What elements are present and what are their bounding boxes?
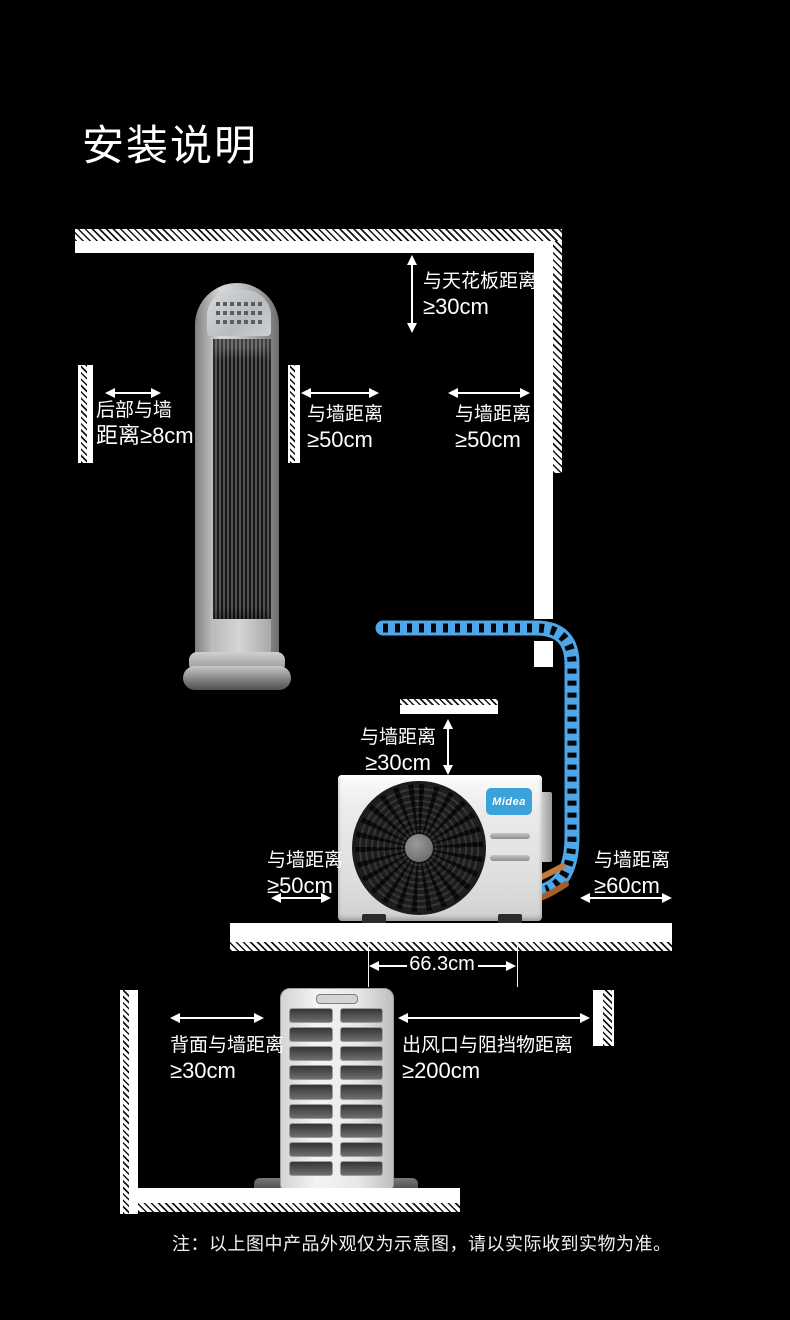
grille-slot <box>289 1065 333 1080</box>
outdoor-unit: Midea <box>338 775 542 921</box>
outdoor-left-clearance-arrow <box>273 897 329 899</box>
grille-slot <box>340 1008 384 1023</box>
fan-hub <box>405 834 433 862</box>
rear-back-clearance-label: 背面与墙距离 ≥30cm <box>170 1034 284 1084</box>
grille-slot <box>289 1104 333 1119</box>
installation-instructions-page: 安装说明 与天花板距离 ≥30cm 后部与墙 距离≥8cm 与墙距离 ≥50c <box>0 0 790 1320</box>
rear-unit-grille <box>289 1008 383 1176</box>
grille-slot <box>289 1084 333 1099</box>
top-clearance-label: 与墙距离 ≥30cm <box>356 726 440 776</box>
grille-slot <box>289 1046 333 1061</box>
disclaimer-note: 注：以上图中产品外观仅为示意图，请以实际收到实物为准。 <box>172 1230 672 1256</box>
rear-right-wall <box>593 990 614 1046</box>
width-arrow-right <box>478 965 514 967</box>
outdoor-vent-slot <box>490 855 530 861</box>
dimension-tick <box>368 927 369 987</box>
rear-floor-hatch <box>138 1203 460 1212</box>
grille-slot <box>340 1161 384 1176</box>
grille-slot <box>289 1027 333 1042</box>
grille-slot <box>289 1161 333 1176</box>
rear-right-wall-hatch <box>603 990 612 1046</box>
rear-left-wall-hatch <box>123 990 129 1214</box>
rear-left-wall <box>120 990 138 1214</box>
unit-width-label: 66.3cm <box>404 953 480 976</box>
outdoor-right-clearance-label: 与墙距离 ≥60cm <box>594 849 670 899</box>
rear-front-clearance-arrow <box>400 1017 588 1019</box>
grille-slot <box>340 1046 384 1061</box>
grille-slot <box>289 1123 333 1138</box>
rear-unit-handle <box>316 994 358 1004</box>
top-clearance-arrow <box>447 721 449 773</box>
grille-slot <box>340 1104 384 1119</box>
rear-floor-surface <box>138 1188 460 1203</box>
grille-slot <box>289 1142 333 1157</box>
outdoor-left-clearance-label: 与墙距离 ≥50cm <box>267 849 343 899</box>
ground-hatch <box>230 942 672 951</box>
dimension-tick <box>517 927 518 987</box>
ground-surface <box>230 923 672 942</box>
grille-slot <box>340 1123 384 1138</box>
outdoor-fan-grille <box>352 781 486 915</box>
rear-back-clearance-arrow <box>172 1017 262 1019</box>
grille-slot <box>340 1142 384 1157</box>
outdoor-right-clearance-arrow <box>582 897 670 899</box>
grille-slot <box>289 1008 333 1023</box>
rear-front-clearance-label: 出风口与阻挡物距离 ≥200cm <box>402 1034 573 1084</box>
outdoor-vent-slot <box>490 833 530 839</box>
outdoor-unit-rear-view <box>280 988 394 1190</box>
outdoor-unit-side-bracket <box>541 792 552 862</box>
refrigerant-pipe <box>0 0 790 1320</box>
grille-slot <box>340 1027 384 1042</box>
width-arrow-left <box>371 965 407 967</box>
grille-slot <box>340 1084 384 1099</box>
grille-slot <box>340 1065 384 1080</box>
brand-logo: Midea <box>486 788 532 815</box>
